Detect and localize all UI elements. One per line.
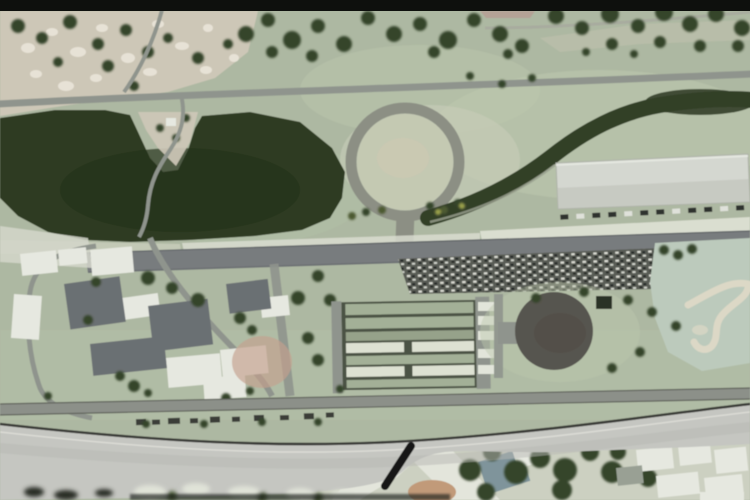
district-building-gray — [616, 465, 644, 486]
ring-infield-sand — [377, 138, 429, 178]
aerial-photo — [0, 0, 750, 500]
dark-hut — [596, 296, 612, 309]
salmon-ground-patch — [232, 336, 292, 388]
video-frame — [0, 0, 750, 500]
shed-road-left — [331, 301, 343, 393]
scene — [0, 0, 750, 500]
warehouse — [556, 154, 750, 209]
peninsula-hut — [166, 118, 176, 126]
shed-rows — [331, 297, 491, 394]
letterbox-top-bar — [0, 0, 750, 11]
pad-connector — [498, 322, 518, 344]
red-roof-sliver — [480, 11, 535, 18]
bottom-dark-smear — [130, 494, 450, 500]
lake-shade — [60, 148, 300, 232]
